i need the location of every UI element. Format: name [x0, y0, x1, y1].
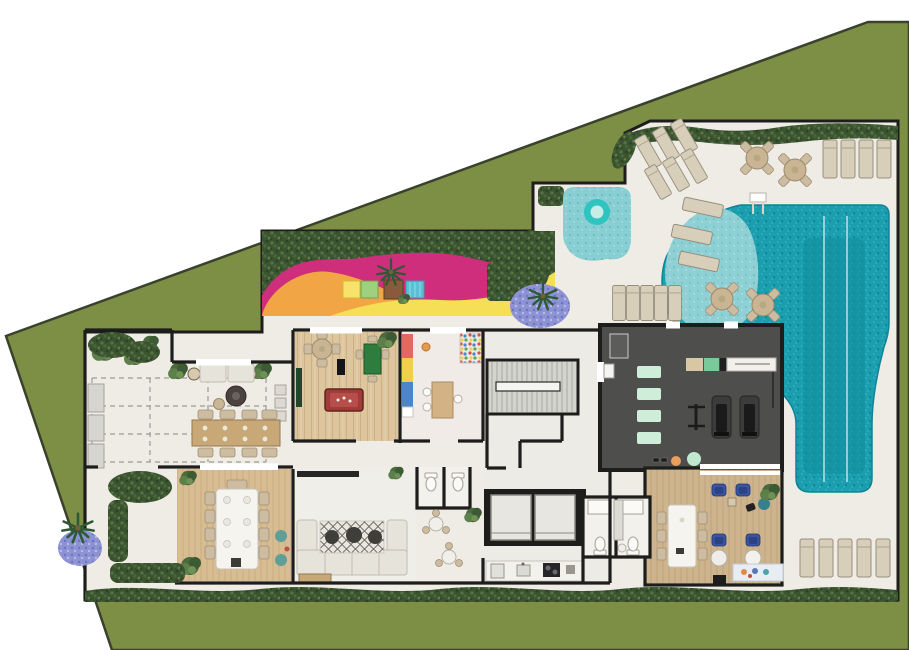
dumbbell: [661, 458, 667, 462]
sun-lounger: [838, 539, 852, 577]
tv-console: [297, 471, 359, 477]
toilet-icon: [594, 537, 606, 555]
cafe-chair: [443, 527, 450, 534]
treadmill: [740, 396, 759, 438]
equipment-shelf: [686, 358, 776, 371]
patio-shrubs: [108, 500, 128, 562]
shelf-red: [402, 334, 413, 358]
sun-lounger: [641, 286, 654, 321]
armchair-blue: [712, 484, 726, 496]
stair-landing: [496, 382, 560, 391]
toilet-icon: [452, 473, 464, 491]
craft-table: [432, 382, 453, 418]
ottoman: [214, 399, 225, 410]
chair: [198, 448, 213, 457]
chair: [205, 546, 215, 559]
chair: [227, 480, 247, 489]
fire-pit-center: [232, 392, 240, 400]
chair: [356, 350, 363, 359]
dining-table: [216, 489, 258, 569]
chair: [259, 546, 269, 559]
side-table: [728, 498, 736, 506]
cafe-table: [429, 517, 443, 531]
chair: [698, 548, 707, 560]
cafe-chair: [446, 543, 453, 550]
kid-chair: [423, 403, 431, 411]
sun-lounger: [859, 140, 873, 178]
sideboard: [296, 368, 302, 407]
chair: [262, 410, 277, 419]
chair: [205, 492, 215, 505]
cafe-chair: [436, 560, 443, 567]
kid-chair: [423, 388, 431, 396]
patio-shrubs: [110, 563, 185, 583]
chair: [220, 448, 235, 457]
chair: [657, 530, 666, 542]
exercise-ball: [671, 456, 681, 466]
stool-orange: [422, 343, 430, 351]
changing-counter: [614, 500, 623, 540]
teal-pouf: [275, 554, 287, 566]
shower: [621, 500, 643, 514]
floor-plan-scene: [0, 0, 909, 650]
service-counter: [88, 444, 104, 468]
colorful-rug: [733, 564, 783, 581]
pouf: [368, 530, 382, 544]
round-side-table: [711, 550, 727, 566]
teal-pouf: [275, 530, 287, 542]
service-counter: [88, 415, 104, 441]
cafe-chair: [456, 560, 463, 567]
toilet-icon: [627, 537, 639, 555]
exercise-ball: [687, 452, 701, 466]
chair: [698, 512, 707, 524]
tv-icon: [337, 359, 345, 375]
sun-lounger: [613, 286, 626, 321]
chair: [220, 410, 235, 419]
long-table: [668, 505, 696, 567]
chair: [262, 448, 277, 457]
laptop-icon: [676, 548, 684, 554]
card-table: [364, 344, 381, 374]
service-counter: [88, 384, 104, 412]
chair: [259, 528, 269, 541]
kitchenette: [486, 561, 582, 581]
bench: [299, 574, 331, 582]
cooktop-icon: [543, 563, 560, 577]
desk-item: [680, 518, 685, 523]
chair: [657, 512, 666, 524]
sun-lounger: [819, 539, 833, 577]
exercise-mat: [637, 432, 661, 444]
kid-chair: [454, 395, 462, 403]
floor-plan: [0, 0, 909, 650]
exercise-mat: [637, 388, 661, 400]
splash-ring-center: [591, 206, 604, 219]
hedge-patch: [538, 186, 564, 206]
elevator-bank: [484, 489, 586, 546]
fridge-icon: [491, 564, 504, 578]
chair: [242, 410, 257, 419]
dumbbell: [653, 458, 659, 462]
chair: [259, 510, 269, 523]
chair: [259, 492, 269, 505]
shelf-blue: [402, 382, 413, 407]
chair: [205, 528, 215, 541]
shelf-yellow: [402, 358, 413, 382]
chair: [368, 376, 377, 382]
chair: [205, 510, 215, 523]
play-cube-green: [361, 281, 378, 298]
sink-icon: [517, 565, 530, 576]
pouf: [325, 530, 339, 544]
side-table-square: [275, 398, 286, 408]
sun-lounger: [800, 539, 814, 577]
toilet-icon: [425, 473, 437, 491]
main-pool-deep-zone: [803, 238, 865, 474]
burner: [553, 570, 558, 575]
lounge-wc: [417, 467, 470, 508]
shelf-white: [402, 407, 413, 417]
ball-pit: [460, 333, 483, 363]
armchair-blue: [712, 534, 726, 546]
sun-lounger: [669, 286, 682, 321]
appliance: [566, 565, 575, 574]
sun-lounger: [857, 539, 871, 577]
pouf: [346, 527, 362, 543]
stair-core: [487, 360, 578, 414]
table-runner: [231, 558, 241, 567]
play-cube-yellow: [343, 281, 360, 298]
chair: [698, 530, 707, 542]
burner: [546, 566, 551, 571]
door-threshold: [713, 575, 726, 584]
long-table-set: [657, 505, 707, 567]
chair: [198, 410, 213, 419]
billiard-table: [325, 389, 363, 411]
sun-lounger: [841, 140, 855, 178]
sun-lounger: [627, 286, 640, 321]
kids-pool: [563, 187, 631, 261]
exercise-mat: [637, 410, 661, 422]
chair: [657, 548, 666, 560]
patio-shrubs: [108, 471, 172, 503]
shower: [588, 500, 610, 514]
exercise-mat: [637, 366, 661, 378]
sun-lounger: [876, 539, 890, 577]
chair: [242, 448, 257, 457]
treadmill: [712, 396, 731, 438]
sun-lounger: [655, 286, 668, 321]
sun-lounger: [877, 140, 891, 178]
gym-door-opening: [597, 362, 604, 382]
cafe-table: [442, 550, 456, 564]
cafe-chair: [433, 510, 440, 517]
side-table: [188, 368, 200, 380]
sun-lounger: [823, 140, 837, 178]
accent-stool: [285, 547, 290, 552]
chair: [382, 350, 389, 359]
terrace-sofa: [200, 364, 226, 382]
side-table-square: [275, 385, 286, 395]
stool: [618, 544, 626, 552]
armchair-blue: [746, 534, 760, 546]
chair: [368, 336, 377, 342]
cafe-chair: [423, 527, 430, 534]
armchair-blue: [736, 484, 750, 496]
gym-locker: [610, 334, 628, 358]
faucet-icon: [522, 563, 525, 566]
terrace-sofa: [228, 364, 254, 382]
gym-door-leaf: [604, 364, 614, 378]
